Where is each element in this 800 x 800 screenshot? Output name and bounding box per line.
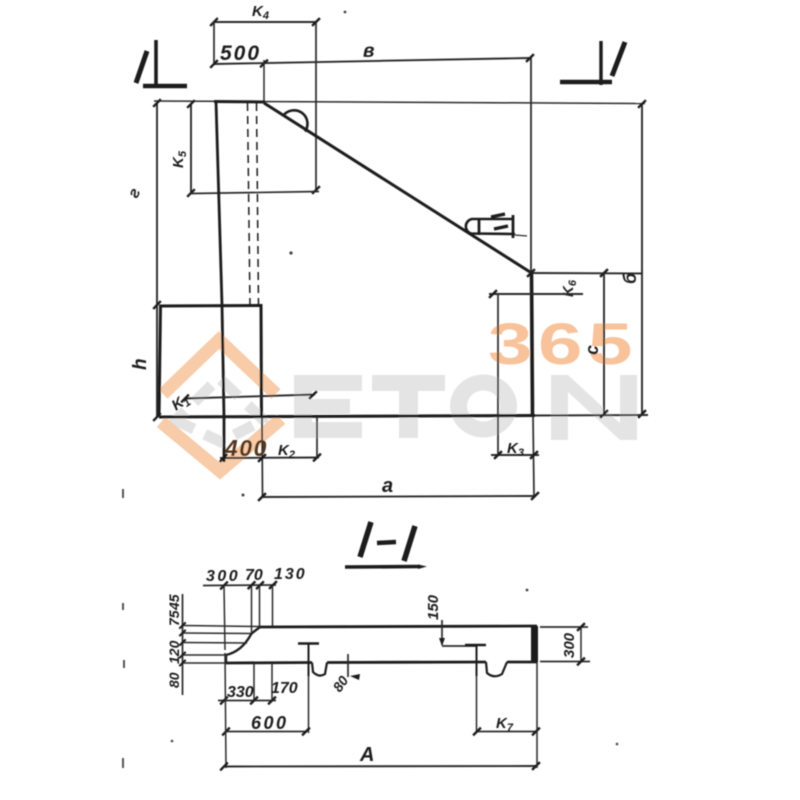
svg-text:45: 45 (166, 594, 182, 611)
svg-text:170: 170 (271, 680, 298, 697)
svg-text:K5: K5 (170, 150, 189, 168)
svg-text:A: A (359, 744, 374, 766)
svg-text:70: 70 (245, 567, 263, 584)
svg-text:K3: K3 (507, 440, 524, 459)
svg-text:330: 330 (227, 684, 254, 701)
svg-text:K4: K4 (252, 3, 269, 22)
svg-text:120: 120 (166, 640, 182, 664)
svg-text:в: в (363, 41, 374, 62)
svg-text:75: 75 (166, 610, 182, 626)
svg-text:h: h (130, 358, 151, 370)
svg-text:а: а (382, 475, 393, 497)
svg-text:80: 80 (166, 672, 182, 688)
svg-text:150: 150 (425, 594, 442, 620)
svg-text:130: 130 (274, 566, 307, 583)
svg-text:г: г (125, 185, 144, 200)
svg-text:K7: K7 (496, 715, 514, 734)
svg-text:600: 600 (251, 713, 289, 733)
svg-text:300: 300 (561, 632, 578, 658)
svg-text:400: 400 (224, 435, 268, 461)
svg-text:300: 300 (206, 568, 240, 585)
svg-text:K1: K1 (169, 391, 194, 416)
svg-text:500: 500 (220, 42, 261, 65)
svg-text:K2: K2 (278, 442, 295, 461)
svg-text:365: 365 (488, 312, 638, 377)
svg-text:с: с (582, 345, 602, 355)
